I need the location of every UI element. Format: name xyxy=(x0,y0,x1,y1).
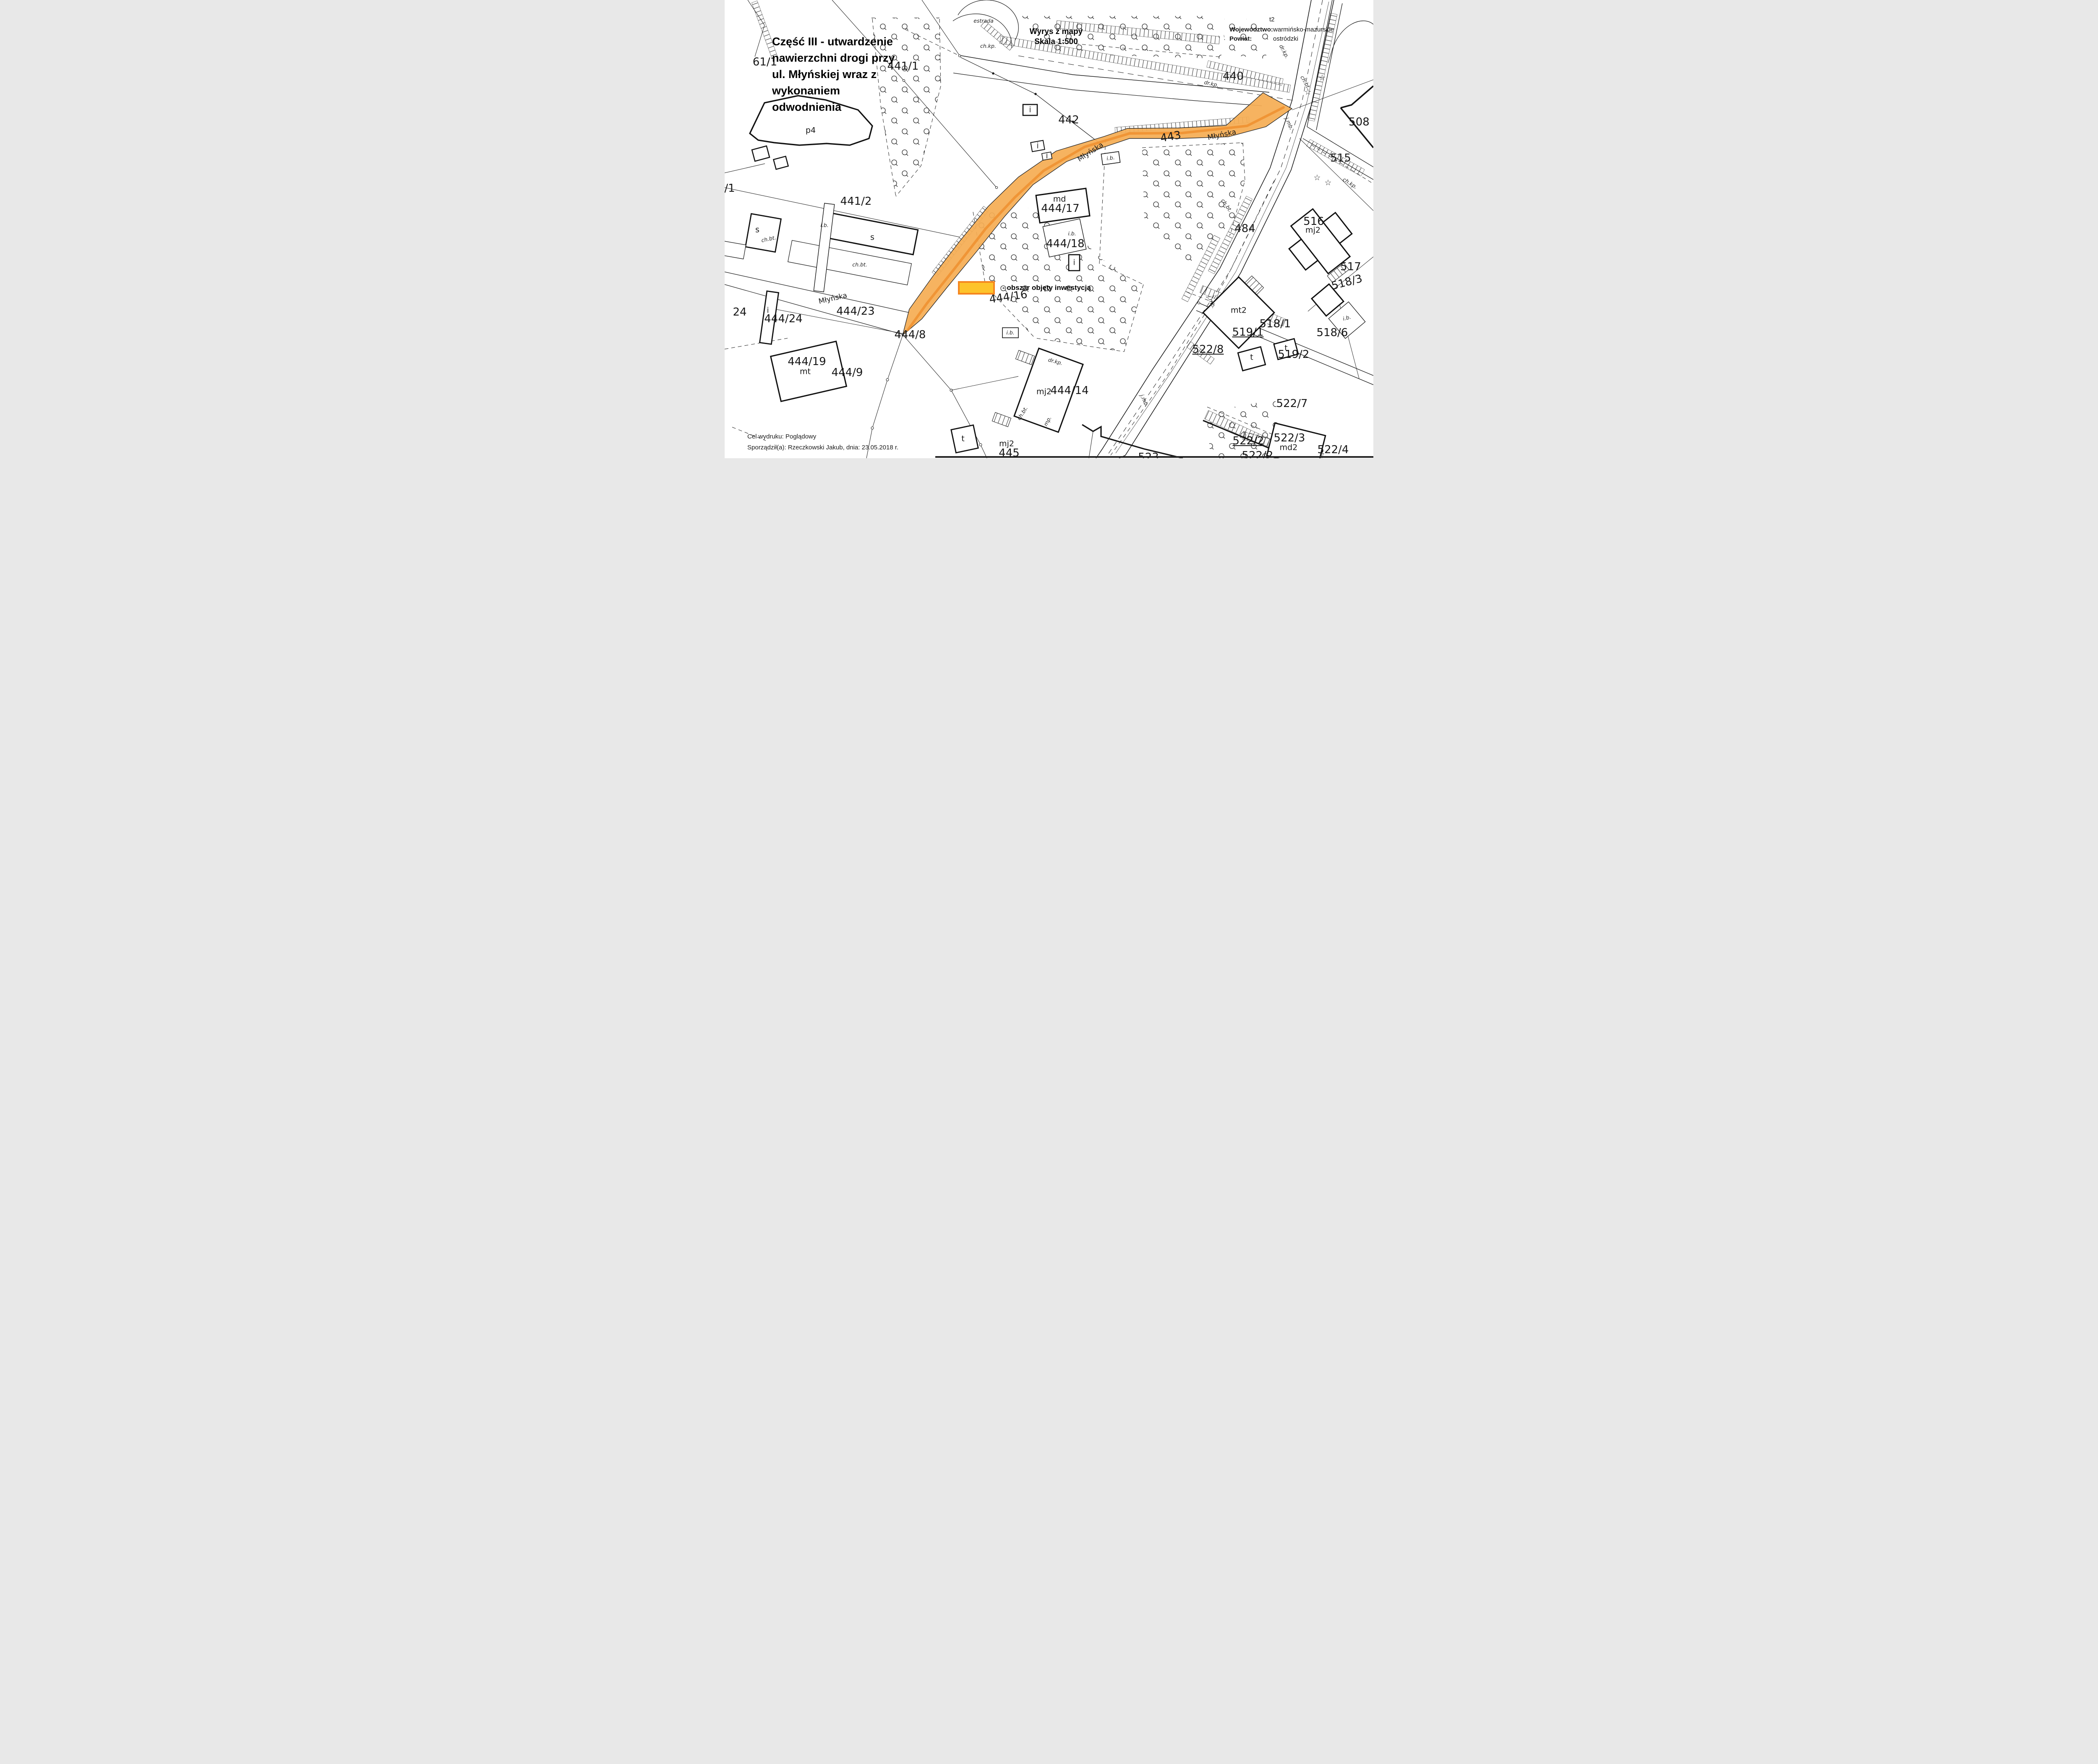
title-line: wykonaniem xyxy=(772,83,895,99)
ib-box-2 xyxy=(1002,328,1018,338)
sheet-mark: t2 xyxy=(1269,16,1275,23)
building-s-west xyxy=(746,214,781,252)
legend: - obszar objęty inwestycją xyxy=(958,281,1091,295)
info-box-1 xyxy=(1023,104,1037,115)
map-scale: Skala 1:500 xyxy=(1018,37,1094,47)
map-page: 61/1441/1440442443508515516mj2484517518/… xyxy=(725,0,1373,458)
legend-label: - obszar objęty inwestycją xyxy=(1002,284,1091,292)
legend-swatch xyxy=(958,281,995,295)
voivodeship-label: Województwo: xyxy=(1229,25,1270,34)
building-444-17 xyxy=(1036,188,1090,223)
info-box-2 xyxy=(1031,141,1044,152)
building-t1 xyxy=(1238,347,1265,371)
print-purpose: Cel wydruku: Poglądowy xyxy=(747,431,898,442)
ib-box-1 xyxy=(1101,151,1120,165)
county-label: Powiat: xyxy=(1229,34,1270,44)
map-title-block: Wyrys z mapy Skala 1:500 xyxy=(1018,27,1094,47)
info-box-3 xyxy=(1042,152,1052,160)
building-s-4412 xyxy=(821,212,918,255)
title-line: ul. Młyńskiej wraz z xyxy=(772,66,895,83)
building-t-bottom xyxy=(951,425,978,453)
scan-edge-artifact xyxy=(935,456,1373,458)
print-footer: Cel wydruku: Poglądowy Sporządził(a): Rz… xyxy=(747,431,898,453)
info-box-4 xyxy=(1069,255,1080,271)
building-522-3 xyxy=(1267,423,1326,458)
region-info: Województwo: warmińsko-mazurskie Powiat:… xyxy=(1229,25,1334,44)
print-author: Sporządził(a): Rzeczkowski Jakub, dnia: … xyxy=(747,442,898,453)
building-t2 xyxy=(1274,339,1298,360)
building-444-19 xyxy=(771,341,847,401)
voivodeship-value: warmińsko-mazurskie xyxy=(1273,25,1334,34)
building-444-24 xyxy=(760,291,779,344)
title-line: Część III - utwardzenie xyxy=(772,34,895,50)
county-value: ostródzki xyxy=(1273,34,1298,44)
title-line: nawierzchni drogi przy xyxy=(772,50,895,66)
map-title: Wyrys z mapy xyxy=(1018,27,1094,37)
title-line: odwodnienia xyxy=(772,99,895,115)
drawing-title: Część III - utwardzenie nawierzchni drog… xyxy=(772,34,895,115)
